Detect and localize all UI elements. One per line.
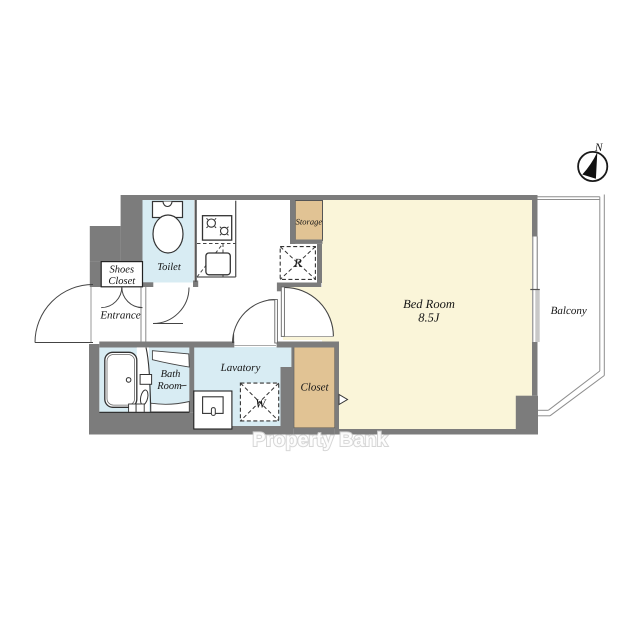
svg-text:N: N xyxy=(594,142,604,154)
svg-text:Closet: Closet xyxy=(300,382,329,394)
svg-text:Closet: Closet xyxy=(108,276,136,287)
svg-text:R: R xyxy=(293,256,302,270)
svg-text:Entrance: Entrance xyxy=(99,310,140,322)
svg-text:Shoes: Shoes xyxy=(110,265,135,276)
svg-text:Lavatory: Lavatory xyxy=(220,362,261,374)
svg-text:Property Bank: Property Bank xyxy=(252,429,388,451)
svg-text:Room: Room xyxy=(156,381,182,392)
svg-text:Storage: Storage xyxy=(296,217,323,227)
svg-text:Toilet: Toilet xyxy=(157,262,182,273)
svg-text:Bath: Bath xyxy=(161,369,181,380)
svg-text:Bed Room: Bed Room xyxy=(403,297,455,311)
svg-text:Balcony: Balcony xyxy=(551,305,587,317)
svg-text:W: W xyxy=(255,396,267,410)
svg-text:8.5J: 8.5J xyxy=(418,311,441,325)
